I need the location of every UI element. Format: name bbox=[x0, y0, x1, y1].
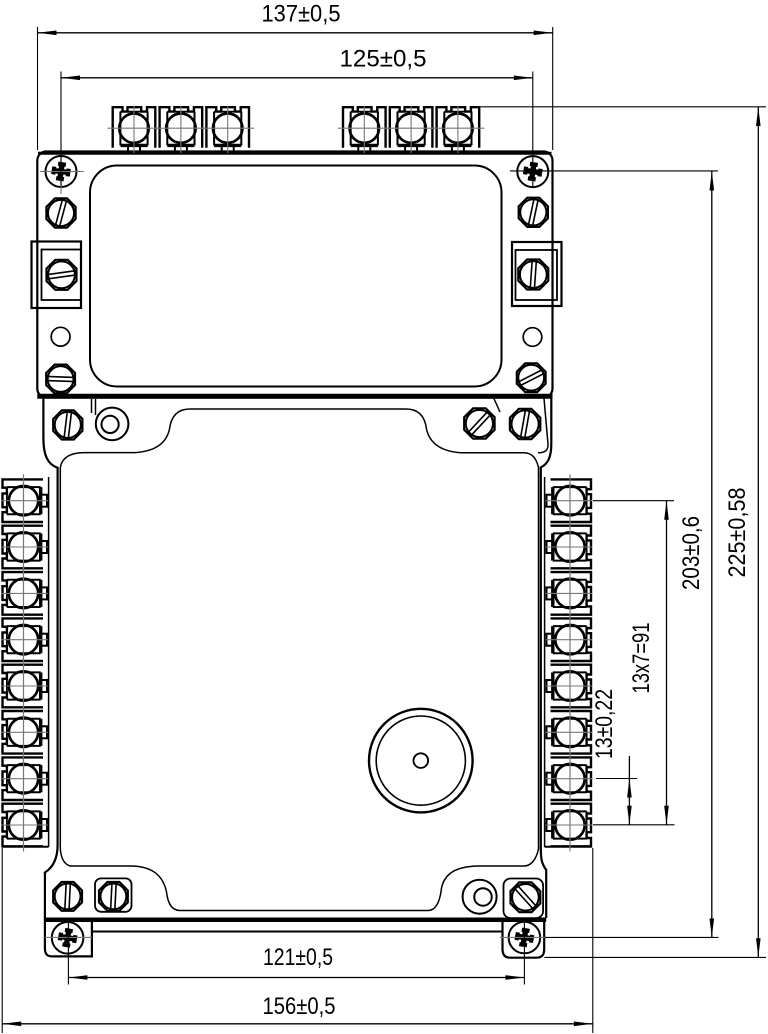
svg-text:125±0,5: 125±0,5 bbox=[340, 46, 427, 73]
svg-text:225±0,58: 225±0,58 bbox=[724, 488, 751, 578]
svg-text:203±0,6: 203±0,6 bbox=[678, 516, 705, 590]
svg-text:13±0,22: 13±0,22 bbox=[591, 689, 618, 759]
svg-text:121±0,5: 121±0,5 bbox=[263, 944, 333, 971]
svg-text:156±0,5: 156±0,5 bbox=[263, 993, 336, 1020]
svg-text:13x7=91: 13x7=91 bbox=[628, 623, 655, 694]
svg-text:137±0,5: 137±0,5 bbox=[262, 1, 341, 28]
